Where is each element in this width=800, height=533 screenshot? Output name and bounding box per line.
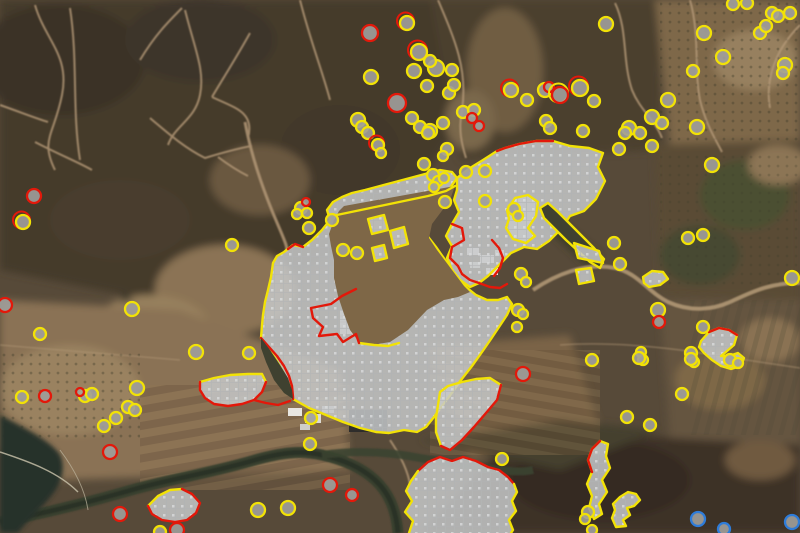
detection-circle-yellow[interactable] bbox=[608, 237, 620, 249]
detection-circle-red[interactable] bbox=[653, 316, 665, 328]
detection-circle-yellow[interactable] bbox=[513, 211, 523, 221]
detection-circle-red[interactable] bbox=[27, 189, 41, 203]
detection-circle-yellow[interactable] bbox=[697, 321, 709, 333]
detection-circle-yellow[interactable] bbox=[351, 247, 363, 259]
detection-circle-yellow[interactable] bbox=[733, 358, 743, 368]
detection-circle-yellow[interactable] bbox=[784, 7, 796, 19]
detection-circle-yellow[interactable] bbox=[130, 381, 144, 395]
detection-circle-yellow[interactable] bbox=[697, 26, 711, 40]
detection-circle-yellow[interactable] bbox=[697, 229, 709, 241]
detected-area-field-box-2[interactable] bbox=[390, 227, 408, 248]
detection-circle-yellow[interactable] bbox=[337, 244, 349, 256]
detection-circle-yellow[interactable] bbox=[304, 438, 316, 450]
detection-circle-yellow[interactable] bbox=[614, 258, 626, 270]
detection-circle-red[interactable] bbox=[388, 94, 406, 112]
detection-circle-yellow[interactable] bbox=[303, 222, 315, 234]
detection-circle-yellow[interactable] bbox=[577, 125, 589, 137]
detection-circle-yellow[interactable] bbox=[110, 412, 122, 424]
detection-circle-yellow[interactable] bbox=[479, 195, 491, 207]
detection-circle-yellow[interactable] bbox=[705, 158, 719, 172]
detection-circle-yellow[interactable] bbox=[521, 94, 533, 106]
detection-circle-yellow[interactable] bbox=[438, 151, 448, 161]
detection-circle-yellow[interactable] bbox=[685, 353, 697, 365]
detection-circle-blue[interactable] bbox=[718, 523, 730, 533]
detection-circle-yellow[interactable] bbox=[621, 411, 633, 423]
detection-circle-yellow[interactable] bbox=[460, 166, 472, 178]
detection-circle-red[interactable] bbox=[302, 198, 310, 206]
detection-circle-yellow[interactable] bbox=[727, 0, 739, 10]
detection-circle-yellow[interactable] bbox=[544, 122, 556, 134]
detection-circle-yellow[interactable] bbox=[651, 303, 665, 317]
detection-circle-yellow[interactable] bbox=[599, 17, 613, 31]
detection-circle-yellow[interactable] bbox=[446, 64, 458, 76]
detection-circle-red[interactable] bbox=[113, 507, 127, 521]
detection-circle-yellow[interactable] bbox=[243, 347, 255, 359]
detection-circle-yellow[interactable] bbox=[439, 173, 449, 183]
detection-circle-yellow[interactable] bbox=[125, 302, 139, 316]
detection-circle-yellow[interactable] bbox=[400, 16, 414, 30]
detection-circle-yellow[interactable] bbox=[251, 503, 265, 517]
detection-circle-yellow[interactable] bbox=[518, 309, 528, 319]
detection-circle-red[interactable] bbox=[362, 25, 378, 41]
detection-circle-yellow[interactable] bbox=[785, 271, 799, 285]
detection-circle-red[interactable] bbox=[474, 121, 484, 131]
detection-circle-yellow[interactable] bbox=[429, 182, 439, 192]
detection-circle-yellow[interactable] bbox=[281, 501, 295, 515]
detection-circle-yellow[interactable] bbox=[479, 165, 491, 177]
detection-circle-yellow[interactable] bbox=[364, 70, 378, 84]
detection-circle-yellow[interactable] bbox=[421, 80, 433, 92]
detection-circle-yellow[interactable] bbox=[619, 127, 631, 139]
detected-area-east-small-box[interactable] bbox=[576, 268, 594, 284]
detection-circle-yellow[interactable] bbox=[690, 120, 704, 134]
detected-area-field-box-1[interactable] bbox=[368, 215, 388, 234]
detection-circle-yellow[interactable] bbox=[418, 158, 430, 170]
detection-circle-yellow[interactable] bbox=[129, 404, 141, 416]
detection-circle-yellow[interactable] bbox=[86, 388, 98, 400]
detection-circle-yellow[interactable] bbox=[588, 95, 600, 107]
detection-circle-yellow[interactable] bbox=[586, 354, 598, 366]
detection-circle-red[interactable] bbox=[103, 445, 117, 459]
detection-circle-yellow[interactable] bbox=[422, 127, 434, 139]
detection-circle-yellow[interactable] bbox=[644, 419, 656, 431]
detection-circle-yellow[interactable] bbox=[16, 391, 28, 403]
detection-circle-yellow[interactable] bbox=[189, 345, 203, 359]
detection-circle-red[interactable] bbox=[76, 388, 84, 396]
detection-circle-red[interactable] bbox=[0, 298, 12, 312]
detection-circle-blue[interactable] bbox=[785, 515, 799, 529]
detection-circle-yellow[interactable] bbox=[580, 514, 590, 524]
detected-area-field-box-3[interactable] bbox=[372, 245, 387, 261]
detection-circle-red[interactable] bbox=[39, 390, 51, 402]
detection-circle-red[interactable] bbox=[170, 523, 184, 533]
detection-circle-yellow[interactable] bbox=[326, 214, 338, 226]
detection-circle-yellow[interactable] bbox=[572, 80, 588, 96]
detection-circle-yellow[interactable] bbox=[682, 232, 694, 244]
detection-circle-red[interactable] bbox=[323, 478, 337, 492]
detection-circle-yellow[interactable] bbox=[716, 50, 730, 64]
detection-circle-yellow[interactable] bbox=[302, 208, 312, 218]
detection-circle-yellow[interactable] bbox=[777, 67, 789, 79]
detection-circle-red[interactable] bbox=[552, 87, 568, 103]
detection-circle-yellow[interactable] bbox=[504, 83, 518, 97]
satellite-map[interactable] bbox=[0, 0, 800, 533]
detection-circle-yellow[interactable] bbox=[772, 10, 784, 22]
detection-circle-yellow[interactable] bbox=[634, 127, 646, 139]
detection-circle-red[interactable] bbox=[346, 489, 358, 501]
detection-circle-yellow[interactable] bbox=[154, 526, 166, 533]
detection-circle-yellow[interactable] bbox=[407, 64, 421, 78]
detection-circle-yellow[interactable] bbox=[656, 117, 668, 129]
detection-circle-blue[interactable] bbox=[691, 512, 705, 526]
detection-circle-yellow[interactable] bbox=[437, 117, 449, 129]
detection-circle-yellow[interactable] bbox=[305, 412, 317, 424]
detection-circle-yellow[interactable] bbox=[496, 453, 508, 465]
detection-circle-yellow[interactable] bbox=[521, 277, 531, 287]
detection-circle-yellow[interactable] bbox=[587, 525, 597, 533]
detection-circle-yellow[interactable] bbox=[741, 0, 753, 9]
detection-circle-yellow[interactable] bbox=[292, 209, 302, 219]
detection-circle-yellow[interactable] bbox=[760, 20, 772, 32]
detection-circle-yellow[interactable] bbox=[646, 140, 658, 152]
detection-circle-yellow[interactable] bbox=[448, 79, 460, 91]
detection-circle-yellow[interactable] bbox=[512, 322, 522, 332]
detection-circle-yellow[interactable] bbox=[676, 388, 688, 400]
detection-circle-yellow[interactable] bbox=[687, 65, 699, 77]
detection-circle-yellow[interactable] bbox=[226, 239, 238, 251]
detection-circle-yellow[interactable] bbox=[16, 215, 30, 229]
detection-circle-yellow[interactable] bbox=[661, 93, 675, 107]
detection-circle-yellow[interactable] bbox=[376, 148, 386, 158]
detection-circle-yellow[interactable] bbox=[439, 196, 451, 208]
detection-circle-yellow[interactable] bbox=[633, 352, 645, 364]
detection-circle-yellow[interactable] bbox=[613, 143, 625, 155]
detection-circle-yellow[interactable] bbox=[98, 420, 110, 432]
detection-circle-yellow[interactable] bbox=[424, 55, 436, 67]
detection-circle-red[interactable] bbox=[516, 367, 530, 381]
satellite-map-view[interactable] bbox=[0, 0, 800, 533]
detection-circle-yellow[interactable] bbox=[34, 328, 46, 340]
